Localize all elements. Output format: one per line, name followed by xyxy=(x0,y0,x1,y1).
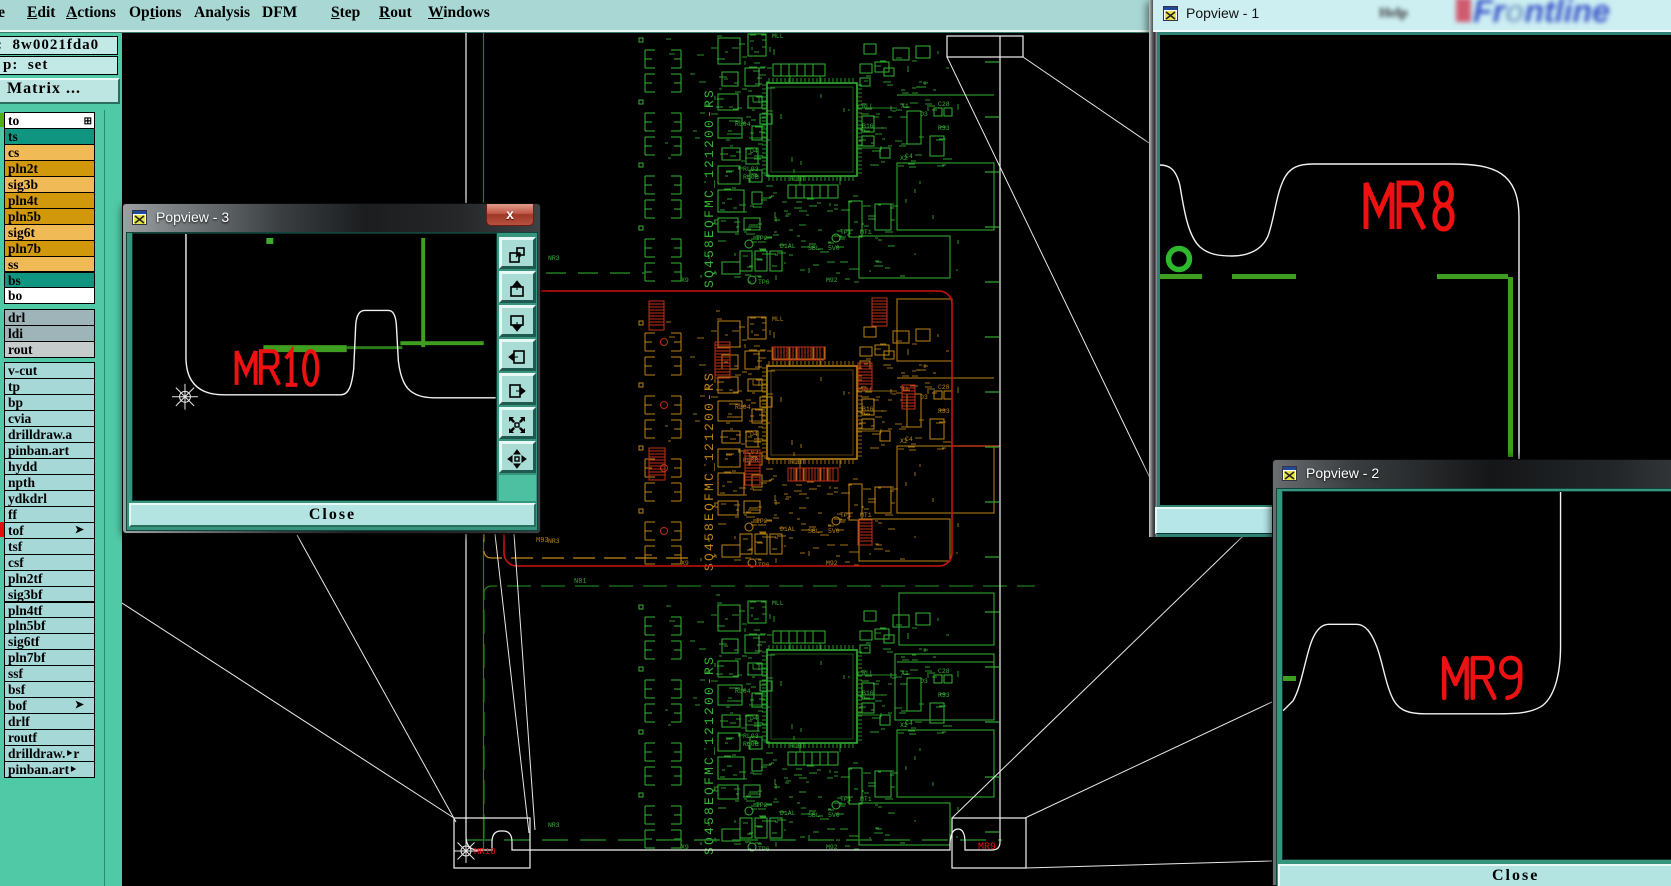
svg-text:M93: M93 xyxy=(536,537,549,545)
svg-text:N81: N81 xyxy=(574,578,587,586)
svg-text:MR10: MR10 xyxy=(474,847,496,857)
svg-text:MR9: MR9 xyxy=(978,842,996,853)
